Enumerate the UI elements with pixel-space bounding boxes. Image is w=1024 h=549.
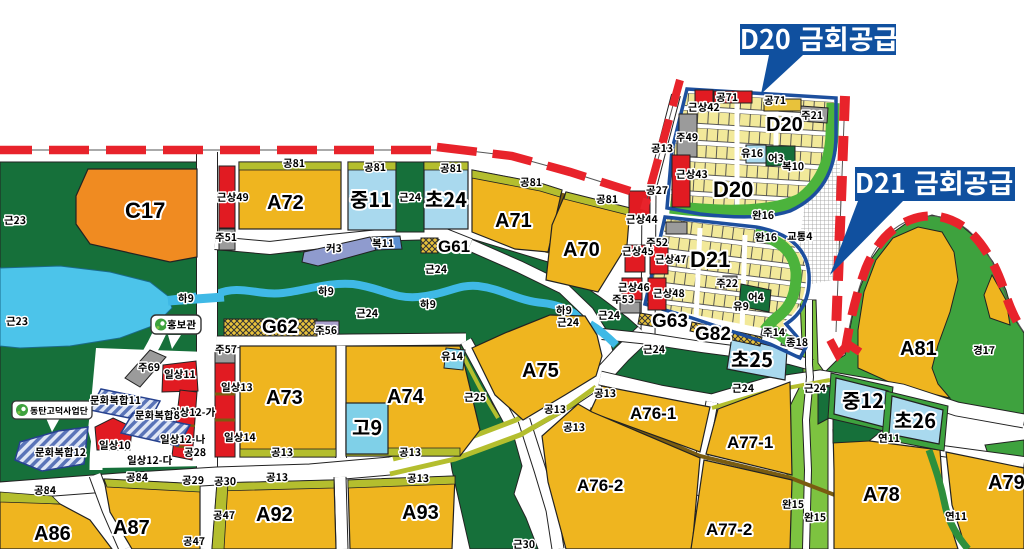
svg-text:A92: A92 — [256, 504, 293, 526]
svg-text:A73: A73 — [266, 387, 303, 409]
svg-text:A81: A81 — [900, 338, 937, 360]
svg-text:A76-1: A76-1 — [630, 404, 676, 423]
svg-text:A72: A72 — [267, 192, 304, 214]
svg-text:A74: A74 — [387, 386, 425, 408]
svg-text:G62: G62 — [262, 317, 298, 338]
svg-text:D20: D20 — [766, 114, 803, 136]
svg-text:A70: A70 — [563, 239, 600, 261]
svg-text:G63: G63 — [652, 311, 688, 332]
svg-text:A77-2: A77-2 — [706, 520, 752, 539]
svg-text:A75: A75 — [522, 360, 559, 382]
svg-text:A79: A79 — [988, 472, 1024, 494]
svg-text:A71: A71 — [495, 210, 532, 232]
svg-text:A86: A86 — [34, 523, 71, 545]
svg-text:D21: D21 — [690, 247, 730, 272]
svg-text:G61: G61 — [438, 237, 470, 256]
svg-text:D20: D20 — [713, 177, 753, 202]
svg-text:A78: A78 — [863, 484, 900, 506]
svg-text:A77-1: A77-1 — [727, 433, 773, 452]
svg-text:C17: C17 — [125, 198, 165, 223]
svg-text:G82: G82 — [695, 324, 731, 345]
svg-text:A76-2: A76-2 — [577, 476, 623, 495]
svg-text:A87: A87 — [113, 517, 150, 539]
svg-text:A93: A93 — [402, 502, 439, 524]
